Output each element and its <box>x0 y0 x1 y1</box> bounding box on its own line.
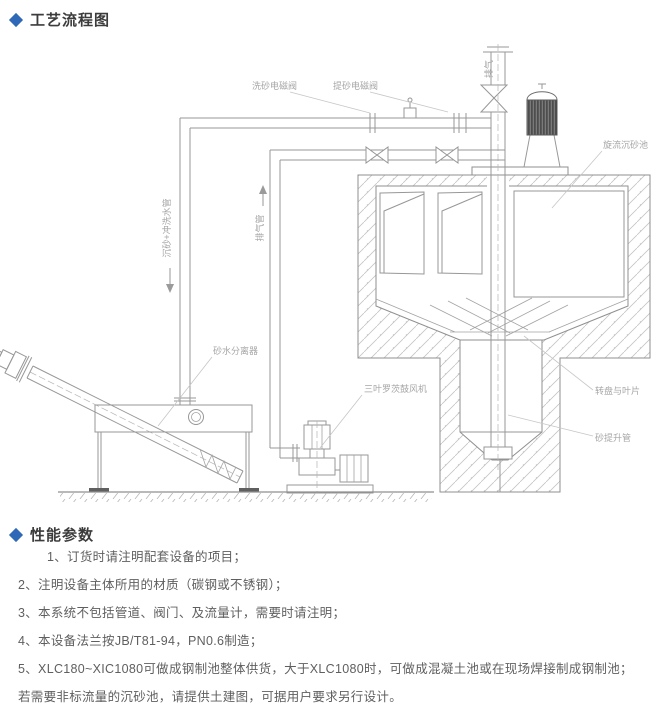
arrow-up-icon <box>259 185 267 194</box>
label-grit-wash-pipe: 沉砂+冲洗水管 <box>161 198 172 257</box>
separator-drive <box>0 340 32 382</box>
diamond-bullet-icon <box>9 12 23 26</box>
cyclone-tank <box>358 173 650 492</box>
label-exhaust: 排气 <box>483 60 494 78</box>
diamond-bullet-icon <box>9 527 23 541</box>
section-header-performance: 性能参数 <box>11 524 94 545</box>
section-title: 工艺流程图 <box>30 9 110 30</box>
ground <box>58 492 434 502</box>
label-wash-solenoid-valve: 洗砂电磁阀 <box>252 80 297 91</box>
label-roots-blower: 三叶罗茨鼓风机 <box>364 383 427 394</box>
drive-motor <box>472 84 568 175</box>
note-item-5-continued: 若需要非标流量的沉砂池，请提供土建图，可据用户要求另行设计。 <box>0 689 660 705</box>
note-item-4: 4、本设备法兰按JB/T81-94，PN0.6制造； <box>0 633 660 649</box>
label-cyclone-tank: 旋流沉砂池 <box>603 139 648 150</box>
label-sand-water-separator: 砂水分离器 <box>213 345 258 356</box>
section-header-process-flow: 工艺流程图 <box>11 9 110 30</box>
label-air-pipe: 排气管 <box>254 214 265 241</box>
catalog-page: 工艺流程图 <box>0 0 660 715</box>
note-item-1: 1、订货时请注明配套设备的项目； <box>0 549 660 565</box>
note-item-5: 5、XLC180~XIC1080可做成钢制池整体供货，大于XLC1080时，可做… <box>0 661 660 677</box>
label-lift-solenoid-valve: 提砂电磁阀 <box>333 80 378 91</box>
performance-notes: 1、订货时请注明配套设备的项目； 2、注明设备主体所用的材质（碳钢或不锈钢）； … <box>0 549 660 715</box>
process-flow-diagram: 洗砂电磁阀 提砂电磁阀 排气 旋流沉砂池 沉砂+冲洗水管 排气管 砂水分离器 三… <box>0 40 660 515</box>
arrow-down-icon <box>166 284 174 293</box>
label-turntable-blades: 转盘与叶片 <box>595 385 640 396</box>
note-item-3: 3、本系统不包括管道、阀门、及流量计，需要时请注明； <box>0 605 660 621</box>
section-title: 性能参数 <box>30 524 94 545</box>
sand-water-separator <box>0 340 259 492</box>
note-item-2: 2、注明设备主体所用的材质（碳钢或不锈钢）； <box>0 577 660 593</box>
label-sand-lift-pipe: 砂提升管 <box>595 432 631 443</box>
process-flow-drawing: 洗砂电磁阀 提砂电磁阀 排气 旋流沉砂池 沉砂+冲洗水管 排气管 砂水分离器 三… <box>0 40 660 515</box>
roots-blower <box>287 421 373 493</box>
